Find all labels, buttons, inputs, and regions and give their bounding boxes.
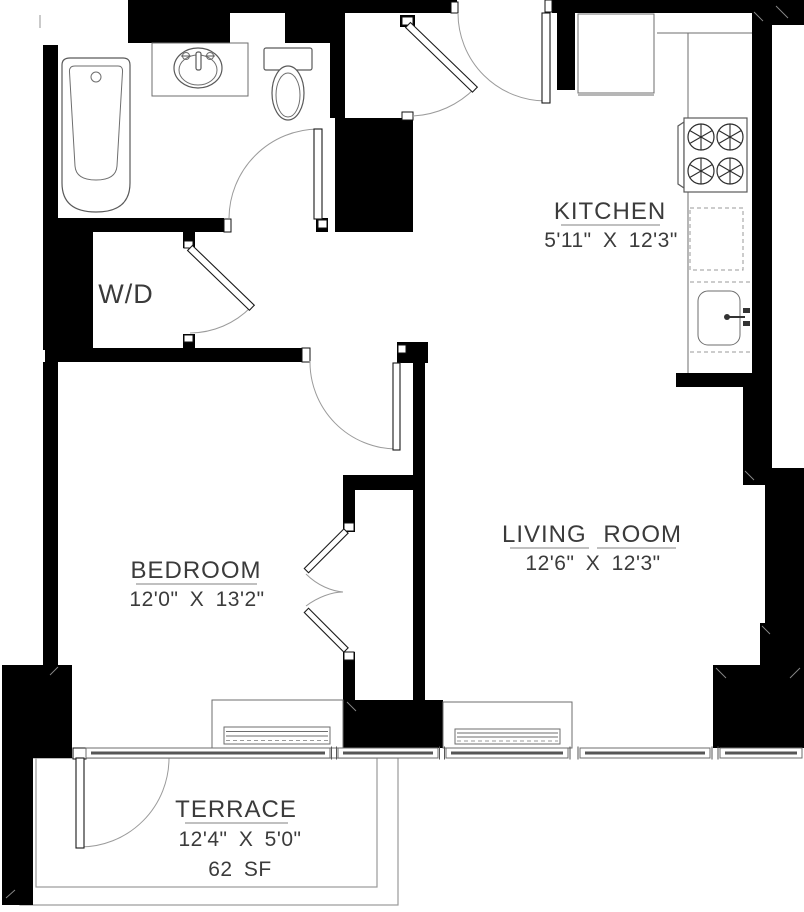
stove-icon [678,118,747,192]
laundry-label: W/D [98,279,153,309]
kitchen-label: KITCHEN [554,198,666,225]
kitchen-counter [657,33,752,373]
entry-closet-door [406,22,478,116]
terrace-door [76,758,169,848]
radiator-bedroom [212,700,343,748]
bathtub-icon [62,58,130,212]
terrace-area: 62 SF [208,858,272,881]
room-labels: KITCHEN 5'11" X 12'3" LIVING ROOM 12'6" … [98,198,682,881]
window-band [86,747,802,760]
door-jambs [73,0,552,759]
floor-plan: KITCHEN 5'11" X 12'3" LIVING ROOM 12'6" … [0,0,804,912]
bedroom-door [310,361,400,450]
kitchen-dims: 5'11" X 12'3" [544,229,678,252]
bathroom-sink-icon [152,43,248,96]
living-room-label: LIVING ROOM [502,521,682,548]
toilet-icon [264,48,312,120]
kitchen-sink-icon [698,291,750,345]
bedroom-label: BEDROOM [130,557,261,584]
closet-bifold-doors [304,529,348,652]
living-room-dims: 12'6" X 12'3" [525,552,660,575]
bedroom-dims: 12'0" X 13'2" [129,588,264,611]
refrigerator-icon [578,14,654,95]
bathroom-door [229,129,322,219]
terrace-dims: 12'4" X 5'0" [179,828,302,851]
terrace-label: TERRACE [175,796,297,823]
laundry-door [188,245,255,333]
radiator-living-room [443,702,572,748]
